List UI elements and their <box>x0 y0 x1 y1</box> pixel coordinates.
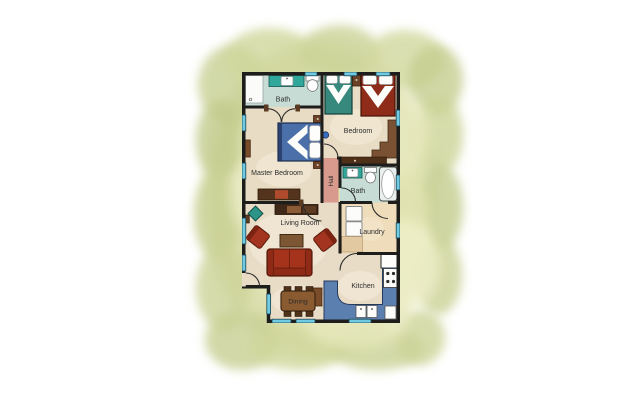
window <box>396 223 400 238</box>
label-hall: Hall <box>328 176 335 187</box>
floor-plan-scene: Bath Bedroom Master Bedroom Hall Bath Li… <box>0 0 640 400</box>
window <box>376 72 390 76</box>
burner-icon <box>392 272 395 275</box>
pillow <box>327 76 338 84</box>
sofa <box>267 249 312 276</box>
pillow <box>310 143 321 159</box>
washer <box>346 207 362 222</box>
bed-teal <box>325 74 352 114</box>
closet-knob-icon <box>354 160 356 162</box>
floor-plan: Bath Bedroom Master Bedroom Hall Bath Li… <box>242 72 400 323</box>
pillow <box>363 76 377 85</box>
dining-chair <box>306 312 313 317</box>
dining-chair <box>295 312 302 317</box>
window <box>242 255 246 271</box>
window <box>349 319 371 323</box>
bed-red <box>361 74 395 116</box>
label-bath-top: Bath <box>276 97 291 104</box>
label-living-room: Living Room <box>281 220 320 227</box>
shower <box>246 76 264 104</box>
pillow <box>310 126 321 142</box>
label-master-bedroom: Master Bedroom <box>251 170 303 177</box>
burner-icon <box>386 272 389 275</box>
window <box>396 110 400 126</box>
faucet-icon <box>352 170 354 172</box>
toilet-bowl <box>307 80 318 92</box>
pillow <box>340 76 351 84</box>
label-laundry: Laundry <box>359 229 385 236</box>
burner-icon <box>386 280 389 283</box>
burner-icon <box>392 280 395 283</box>
window <box>272 319 291 323</box>
stove <box>384 269 398 288</box>
kitchen-sink <box>367 306 377 318</box>
pillow <box>379 76 393 85</box>
window <box>242 163 246 179</box>
window <box>267 294 271 314</box>
faucet-icon <box>286 78 288 80</box>
window <box>344 72 357 76</box>
door-jamb <box>296 105 301 112</box>
master-bed <box>278 123 322 161</box>
label-kitchen: Kitchen <box>351 283 374 290</box>
label-bath-middle: Bath <box>351 188 366 195</box>
laundry-counter <box>342 237 363 253</box>
window <box>396 175 400 190</box>
label-dining: Dining <box>288 299 307 306</box>
kitchen-sink <box>356 306 366 318</box>
closet <box>341 157 387 165</box>
window <box>305 72 317 76</box>
window <box>242 115 246 131</box>
dresser-center <box>275 190 288 199</box>
label-bedroom: Bedroom <box>344 128 373 135</box>
coffee-table <box>280 235 303 248</box>
dining-chair <box>284 312 291 317</box>
bathtub-basin <box>382 170 395 199</box>
window <box>242 218 246 244</box>
toilet-bowl <box>366 172 376 183</box>
door-jamb <box>264 105 269 112</box>
window <box>296 319 315 323</box>
door-opening <box>242 273 246 287</box>
fridge <box>381 254 398 269</box>
dishwasher <box>385 306 396 319</box>
